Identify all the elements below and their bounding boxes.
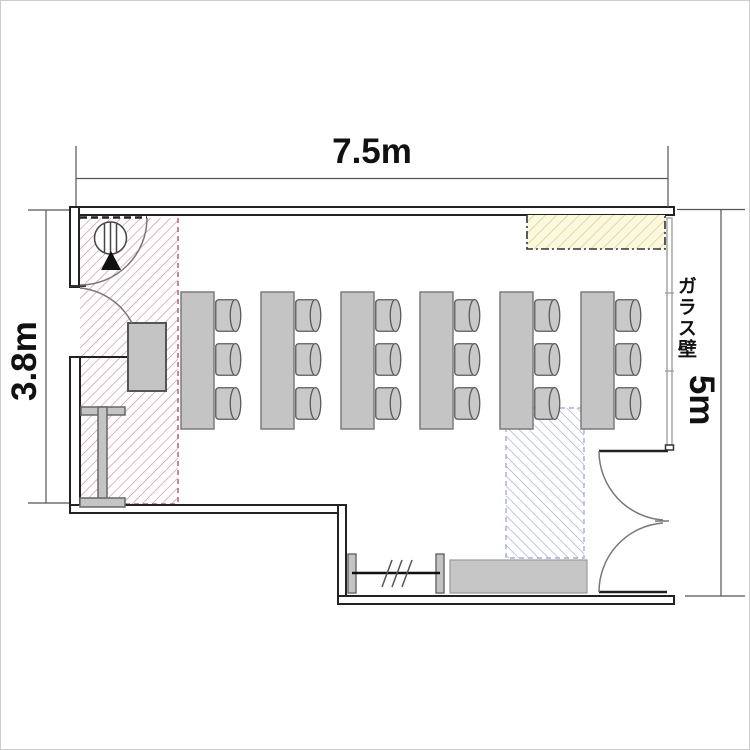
floor-plan: 7.5m 3.8m 5m ガラス壁 bbox=[0, 0, 750, 750]
glass-wall-label: ガラス壁 bbox=[674, 276, 696, 360]
bench bbox=[450, 560, 587, 593]
dimension-label-width: 7.5m bbox=[281, 132, 463, 172]
table bbox=[581, 292, 614, 429]
table bbox=[261, 292, 294, 429]
pillar-icon bbox=[95, 222, 127, 254]
bottom-wall bbox=[338, 596, 674, 604]
dimension-label-left-height: 3.8m bbox=[5, 270, 45, 452]
table bbox=[500, 292, 533, 429]
left-wall-lower bbox=[70, 357, 80, 513]
table bbox=[341, 292, 374, 429]
table bbox=[420, 292, 453, 429]
left-wall-upper bbox=[70, 207, 79, 287]
top-wall bbox=[70, 207, 674, 215]
reception-desk bbox=[128, 323, 166, 391]
floor-plan-drawing bbox=[1, 1, 749, 749]
coat-rail bbox=[348, 554, 444, 593]
step-wall bbox=[338, 505, 346, 604]
glass-wall-end-cap bbox=[666, 445, 674, 450]
aisle-zone-hatch bbox=[506, 408, 584, 558]
double-door-icon bbox=[599, 451, 669, 592]
counter-zone bbox=[527, 215, 665, 249]
glass-wall bbox=[665, 218, 674, 450]
rail-slashes-icon bbox=[382, 560, 412, 587]
table bbox=[181, 292, 214, 429]
